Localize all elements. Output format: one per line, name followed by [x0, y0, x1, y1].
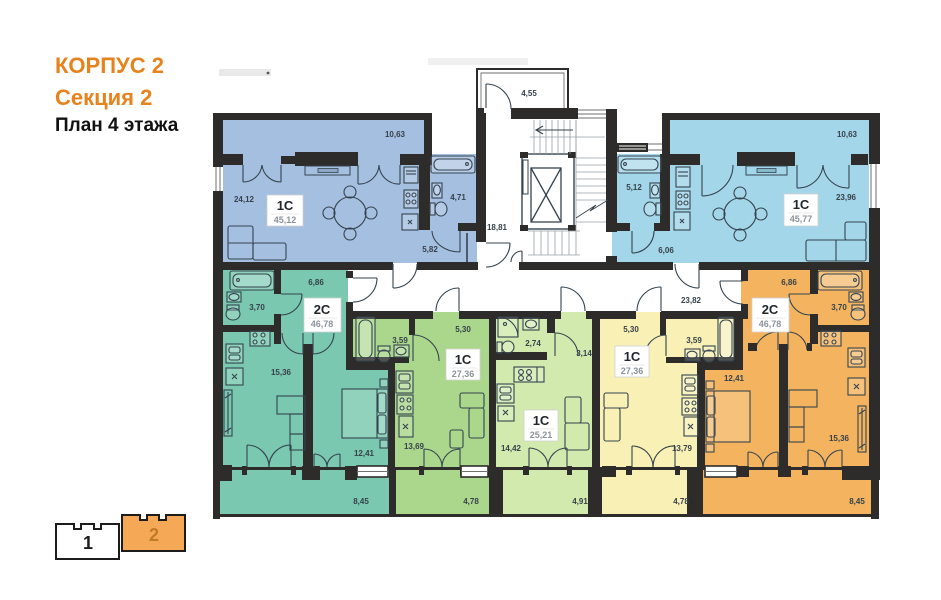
- svg-text:1С: 1С: [624, 349, 641, 364]
- svg-text:4,78: 4,78: [463, 497, 479, 506]
- svg-text:23,82: 23,82: [681, 296, 702, 305]
- svg-text:13,69: 13,69: [404, 442, 425, 451]
- svg-text:6,06: 6,06: [658, 246, 674, 255]
- svg-text:15,36: 15,36: [829, 434, 850, 443]
- svg-text:18,81: 18,81: [487, 223, 508, 232]
- svg-text:4,71: 4,71: [450, 193, 466, 202]
- svg-text:1С: 1С: [277, 198, 294, 213]
- svg-text:1: 1: [83, 533, 93, 553]
- svg-text:23,96: 23,96: [836, 193, 857, 202]
- svg-text:10,63: 10,63: [837, 130, 858, 139]
- svg-text:3,70: 3,70: [831, 303, 847, 312]
- svg-text:1С: 1С: [455, 352, 472, 367]
- svg-text:12,41: 12,41: [724, 374, 745, 383]
- svg-text:12,41: 12,41: [354, 449, 375, 458]
- svg-text:4,78: 4,78: [673, 497, 689, 506]
- svg-text:КОРПУС 2: КОРПУС 2: [55, 53, 164, 78]
- svg-text:27,36: 27,36: [452, 369, 475, 379]
- svg-text:5,30: 5,30: [623, 325, 639, 334]
- svg-text:3,14: 3,14: [576, 349, 592, 358]
- svg-text:5,12: 5,12: [626, 183, 642, 192]
- svg-text:46,78: 46,78: [311, 319, 334, 329]
- svg-text:8,45: 8,45: [849, 497, 865, 506]
- svg-text:2,74: 2,74: [525, 339, 541, 348]
- svg-text:5,82: 5,82: [422, 245, 438, 254]
- svg-text:45,77: 45,77: [790, 214, 813, 224]
- svg-text:План 4 этажа: План 4 этажа: [55, 115, 179, 136]
- svg-text:1С: 1С: [793, 197, 810, 212]
- svg-text:3,59: 3,59: [686, 336, 702, 345]
- svg-text:1С: 1С: [533, 413, 550, 428]
- svg-text:10,63: 10,63: [385, 130, 406, 139]
- svg-text:24,12: 24,12: [234, 195, 255, 204]
- svg-text:6,86: 6,86: [308, 278, 324, 287]
- svg-text:45,12: 45,12: [274, 215, 297, 225]
- svg-text:15,36: 15,36: [271, 368, 292, 377]
- svg-text:14,42: 14,42: [501, 444, 522, 453]
- svg-text:25,21: 25,21: [530, 430, 553, 440]
- svg-text:27,36: 27,36: [621, 366, 644, 376]
- svg-text:2: 2: [149, 525, 159, 545]
- svg-text:13,79: 13,79: [672, 444, 693, 453]
- svg-text:Секция 2: Секция 2: [55, 85, 152, 110]
- svg-text:4,55: 4,55: [521, 89, 537, 98]
- svg-text:2С: 2С: [314, 302, 331, 317]
- svg-text:5,30: 5,30: [455, 325, 471, 334]
- svg-text:6,86: 6,86: [781, 278, 797, 287]
- svg-text:8,45: 8,45: [353, 497, 369, 506]
- svg-text:3,59: 3,59: [392, 336, 408, 345]
- svg-text:2С: 2С: [762, 302, 779, 317]
- svg-text:3,70: 3,70: [249, 303, 265, 312]
- svg-text:46,78: 46,78: [759, 319, 782, 329]
- svg-text:4,91: 4,91: [572, 497, 588, 506]
